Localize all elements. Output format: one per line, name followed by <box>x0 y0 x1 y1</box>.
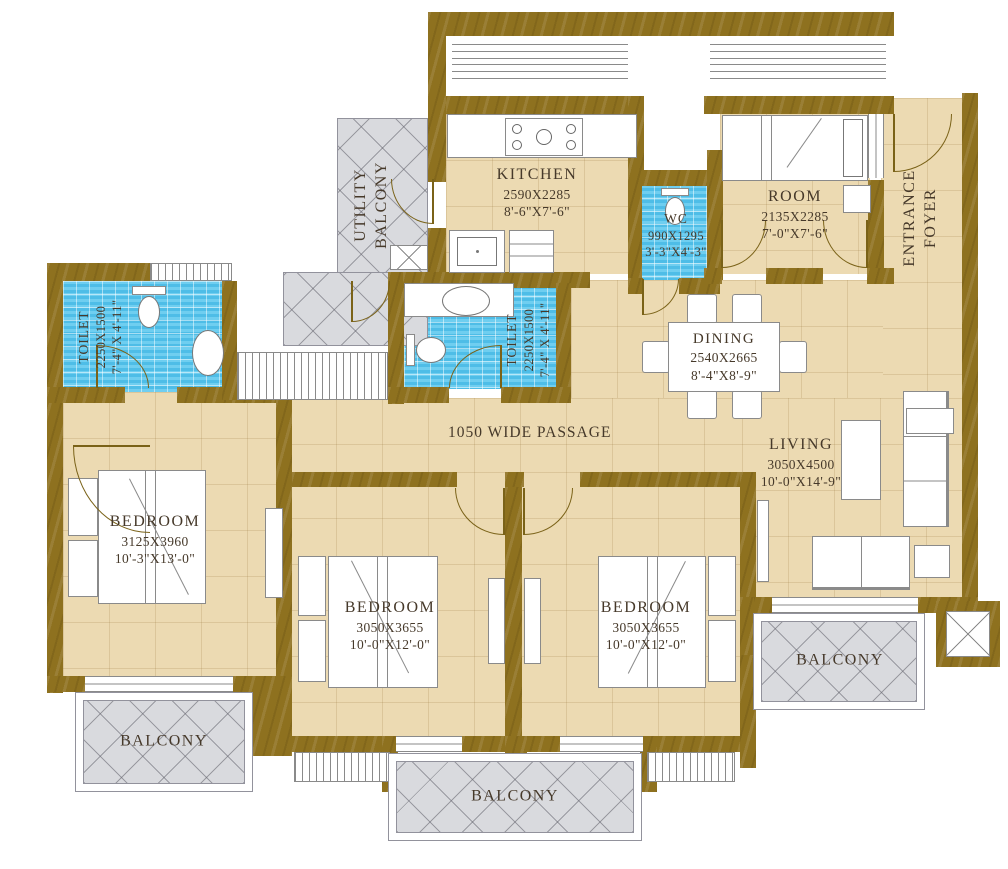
nightstand-icon <box>708 556 736 616</box>
sink-icon <box>192 330 224 376</box>
dining-label: DINING <box>669 330 779 350</box>
wall-segment <box>222 352 238 400</box>
ledge-strip <box>237 352 388 400</box>
window-icon <box>710 44 886 59</box>
door-leaf <box>642 279 644 315</box>
vent-icon <box>150 263 232 281</box>
entrance-foyer-label: ENTRANCE FOYER <box>900 169 942 266</box>
window-icon <box>710 64 886 79</box>
wall-segment <box>428 12 894 36</box>
balcony-left-label: BALCONY <box>120 732 208 753</box>
wall-segment <box>428 96 640 114</box>
stove-icon <box>505 118 583 156</box>
side-table-icon <box>914 545 950 578</box>
toilet-icon <box>138 296 160 328</box>
chair-icon <box>687 390 717 419</box>
window-icon <box>85 676 233 692</box>
wall-segment <box>428 12 446 182</box>
duct-shaft-icon <box>946 611 990 657</box>
wall-segment <box>962 93 978 613</box>
kitchen-label: KITCHEN 2590X2285 8'-6"X7'-6" <box>497 165 578 221</box>
dishwasher-icon <box>509 230 554 273</box>
door-leaf <box>73 445 150 447</box>
wall-segment <box>522 736 560 752</box>
door-leaf <box>866 220 868 268</box>
wall-segment <box>580 472 744 487</box>
wall-segment <box>628 278 643 294</box>
toilet-mid-label: TOILET 2250X1500 7'-4" X 4'-11" <box>503 303 553 378</box>
wall-segment <box>47 676 85 692</box>
balcony-center-label: BALCONY <box>471 787 559 808</box>
wall-segment <box>704 96 894 114</box>
nightstand-icon <box>68 540 98 597</box>
chair-icon <box>779 341 807 373</box>
sofa-icon <box>812 536 910 590</box>
balcony-right-label: BALCONY <box>796 651 884 672</box>
wall-segment <box>867 268 894 284</box>
door-leaf <box>721 220 723 268</box>
toilet-icon <box>406 334 415 366</box>
chair-icon <box>732 294 762 324</box>
bedroom-mid-label: BEDROOM 3050X3655 10'-0"X12'-0" <box>345 598 436 654</box>
wall-segment <box>556 283 571 403</box>
tv-unit-icon <box>757 500 769 582</box>
nightstand-icon <box>708 620 736 682</box>
cabinet-icon <box>906 408 954 434</box>
bedroom-right-label: BEDROOM 3050X3655 10'-0"X12'-0" <box>601 598 692 654</box>
wall-segment <box>388 387 449 403</box>
wall-segment <box>388 272 404 404</box>
duct-shaft-icon <box>390 245 428 270</box>
bed-icon <box>722 115 868 181</box>
wall-segment <box>628 170 642 292</box>
bedroom-left-label: BEDROOM 3125X3960 10'-3"X13'-0" <box>110 512 201 568</box>
toilet-icon <box>416 337 446 363</box>
wall-segment <box>47 263 63 693</box>
window-icon <box>396 736 462 752</box>
dining-table-icon: DINING 2540X2665 8'-4"X8'-9" <box>668 322 780 392</box>
chair-icon <box>732 390 762 419</box>
wall-segment <box>276 736 396 752</box>
wall-segment <box>292 472 457 487</box>
ledge-strip <box>294 752 390 782</box>
wardrobe-icon <box>524 578 541 664</box>
door-leaf <box>500 345 502 388</box>
window-icon <box>560 736 643 752</box>
door-leaf <box>351 281 353 322</box>
coffee-table-icon <box>841 420 881 500</box>
chair-icon <box>687 294 717 324</box>
dining-size-mm: 2540X2665 <box>669 349 779 367</box>
floor-plan: DINING 2540X2665 8'-4"X8'-9" <box>0 0 1008 869</box>
passage-label: 1050 WIDE PASSAGE <box>448 424 611 442</box>
wall-segment <box>222 281 237 356</box>
window-icon <box>452 64 628 79</box>
wall-segment <box>462 736 505 752</box>
window-icon <box>452 44 628 59</box>
living-label: LIVING 3050X4500 10'-0"X14'-9" <box>761 435 841 491</box>
side-table-icon <box>843 185 871 213</box>
wall-segment <box>643 736 740 752</box>
kitchen-sink-icon <box>449 230 505 273</box>
wall-segment <box>766 268 823 284</box>
wall-segment <box>740 597 754 655</box>
utility-balcony-label: UTILITY BALCONY <box>351 161 393 249</box>
toilet-icon <box>132 286 166 295</box>
toilet-left-label: TOILET 2250X1500 7'-4" X 4'-11" <box>75 300 125 375</box>
wardrobe-icon <box>488 578 505 664</box>
door-leaf <box>523 488 525 535</box>
wall-segment <box>505 472 524 487</box>
toilet-icon <box>661 188 689 196</box>
chair-icon <box>642 341 670 373</box>
door-leaf <box>893 114 895 172</box>
window-icon <box>772 597 918 613</box>
dining-size-ft: 8'-4"X8'-9" <box>669 367 779 385</box>
wardrobe-icon <box>265 508 283 598</box>
wall-segment <box>501 387 571 403</box>
ledge-strip <box>647 752 735 782</box>
wc-label: WC 990X1295 3'-3"X4'-3" <box>645 210 706 260</box>
wall-segment <box>704 268 722 284</box>
nightstand-icon <box>298 556 326 616</box>
nightstand-icon <box>298 620 326 682</box>
sink-icon <box>442 286 490 316</box>
wall-segment <box>505 487 522 752</box>
door-leaf <box>503 488 505 535</box>
wall-segment <box>47 263 150 281</box>
room-label: ROOM 2135X2285 7'-0"X7'-6" <box>761 187 828 243</box>
wall-segment <box>47 387 125 403</box>
window-icon <box>868 114 884 178</box>
door-leaf <box>432 179 434 224</box>
